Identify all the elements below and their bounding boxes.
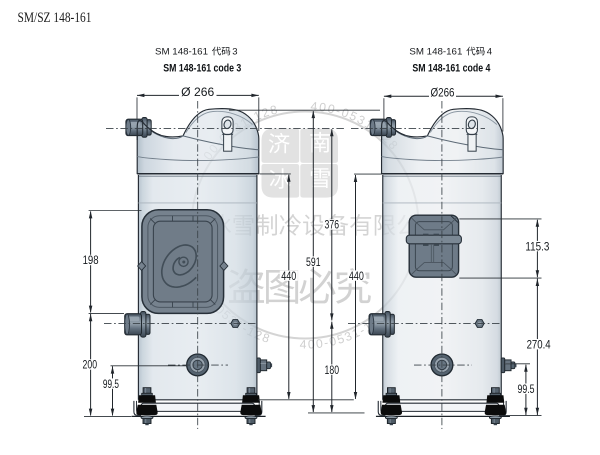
- svg-text:591: 591: [306, 257, 321, 269]
- svg-text:3: 3: [232, 47, 237, 58]
- svg-text:Ø266: Ø266: [431, 87, 455, 99]
- svg-text:SM 148-161 code 3: SM 148-161 code 3: [163, 63, 241, 75]
- svg-text:270.4: 270.4: [527, 339, 552, 351]
- svg-text:SM/SZ 148-161: SM/SZ 148-161: [18, 10, 92, 26]
- svg-text:180: 180: [325, 365, 340, 377]
- svg-text:99.5: 99.5: [103, 379, 119, 391]
- svg-text:99.5: 99.5: [518, 384, 535, 396]
- svg-text:4: 4: [487, 47, 492, 58]
- svg-text:SM 148-161: SM 148-161: [409, 47, 462, 58]
- svg-text:SM 148-161 code 4: SM 148-161 code 4: [412, 63, 490, 75]
- svg-text:Ø 266: Ø 266: [181, 87, 214, 99]
- svg-text:SM 148-161: SM 148-161: [155, 47, 208, 58]
- svg-text:440: 440: [349, 271, 364, 283]
- svg-text:200: 200: [83, 360, 98, 372]
- svg-text:376: 376: [325, 220, 340, 232]
- svg-text:115.3: 115.3: [525, 241, 549, 253]
- svg-text:198: 198: [83, 255, 99, 267]
- svg-text:440: 440: [281, 271, 296, 283]
